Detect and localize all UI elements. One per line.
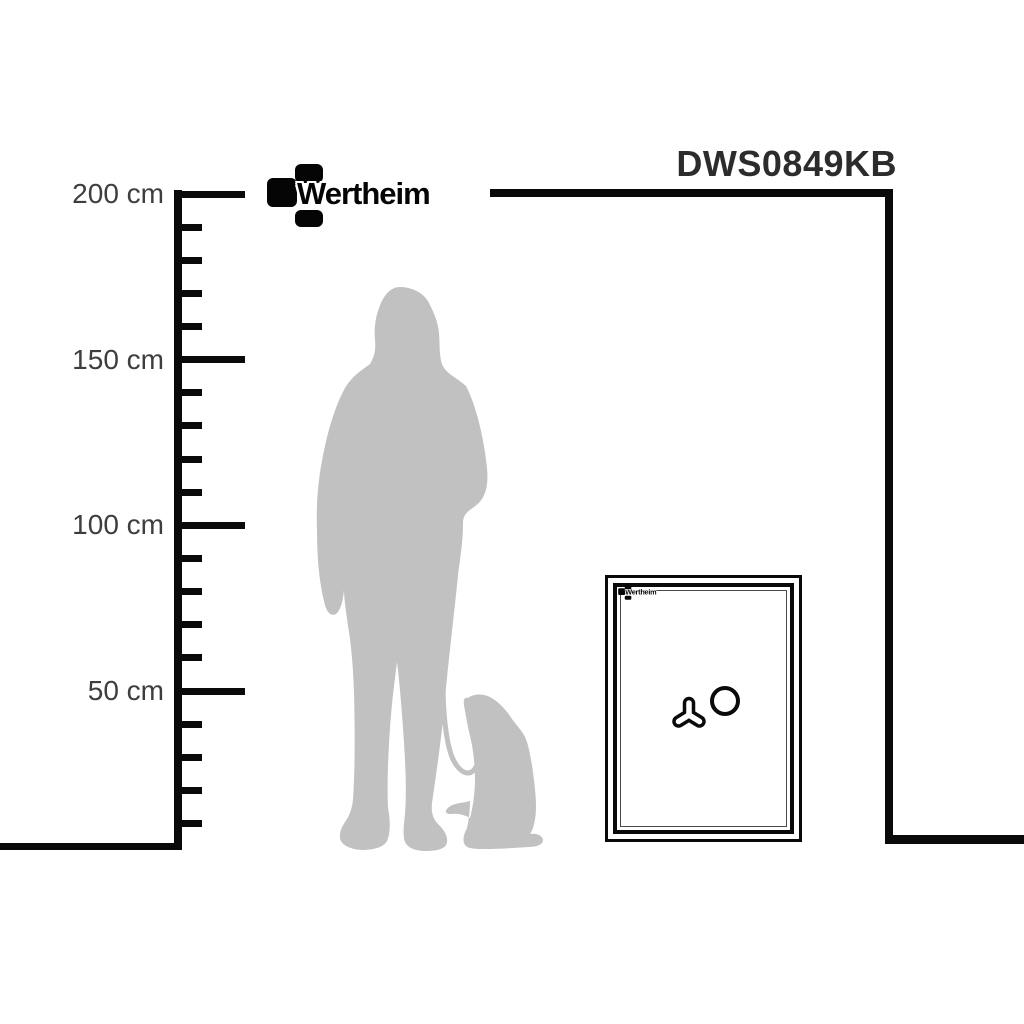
safe-dial-icon <box>712 688 738 714</box>
size-comparison-diagram: 200 cm150 cm100 cm50 cm Wertheim DWS0849… <box>0 0 1024 1024</box>
safe-hardware <box>608 578 805 845</box>
person-dog-figure <box>0 0 1024 1024</box>
safe-handle-icon <box>679 703 700 722</box>
safe-brand-logo: Wertheim <box>617 584 688 601</box>
woman-silhouette <box>317 287 488 851</box>
safe-illustration <box>605 575 802 842</box>
safe-brand-logo-text: Wertheim <box>625 588 656 596</box>
